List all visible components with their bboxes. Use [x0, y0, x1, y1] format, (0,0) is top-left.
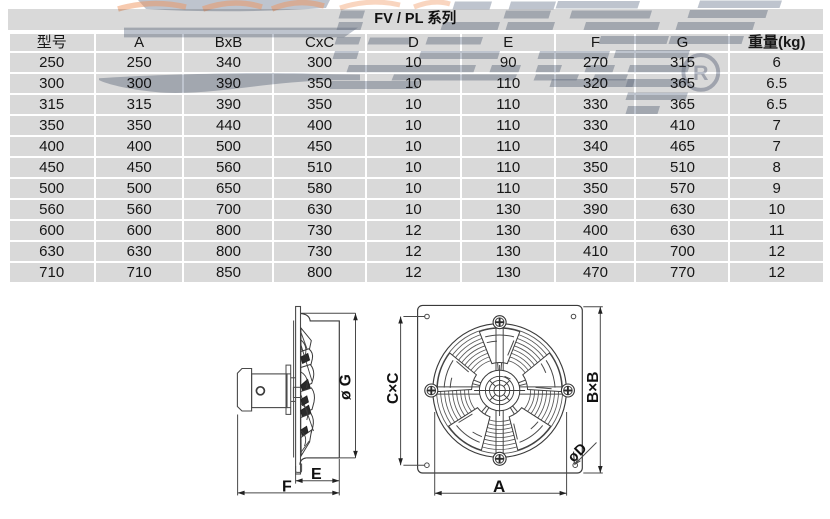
- svg-text:R: R: [693, 61, 709, 85]
